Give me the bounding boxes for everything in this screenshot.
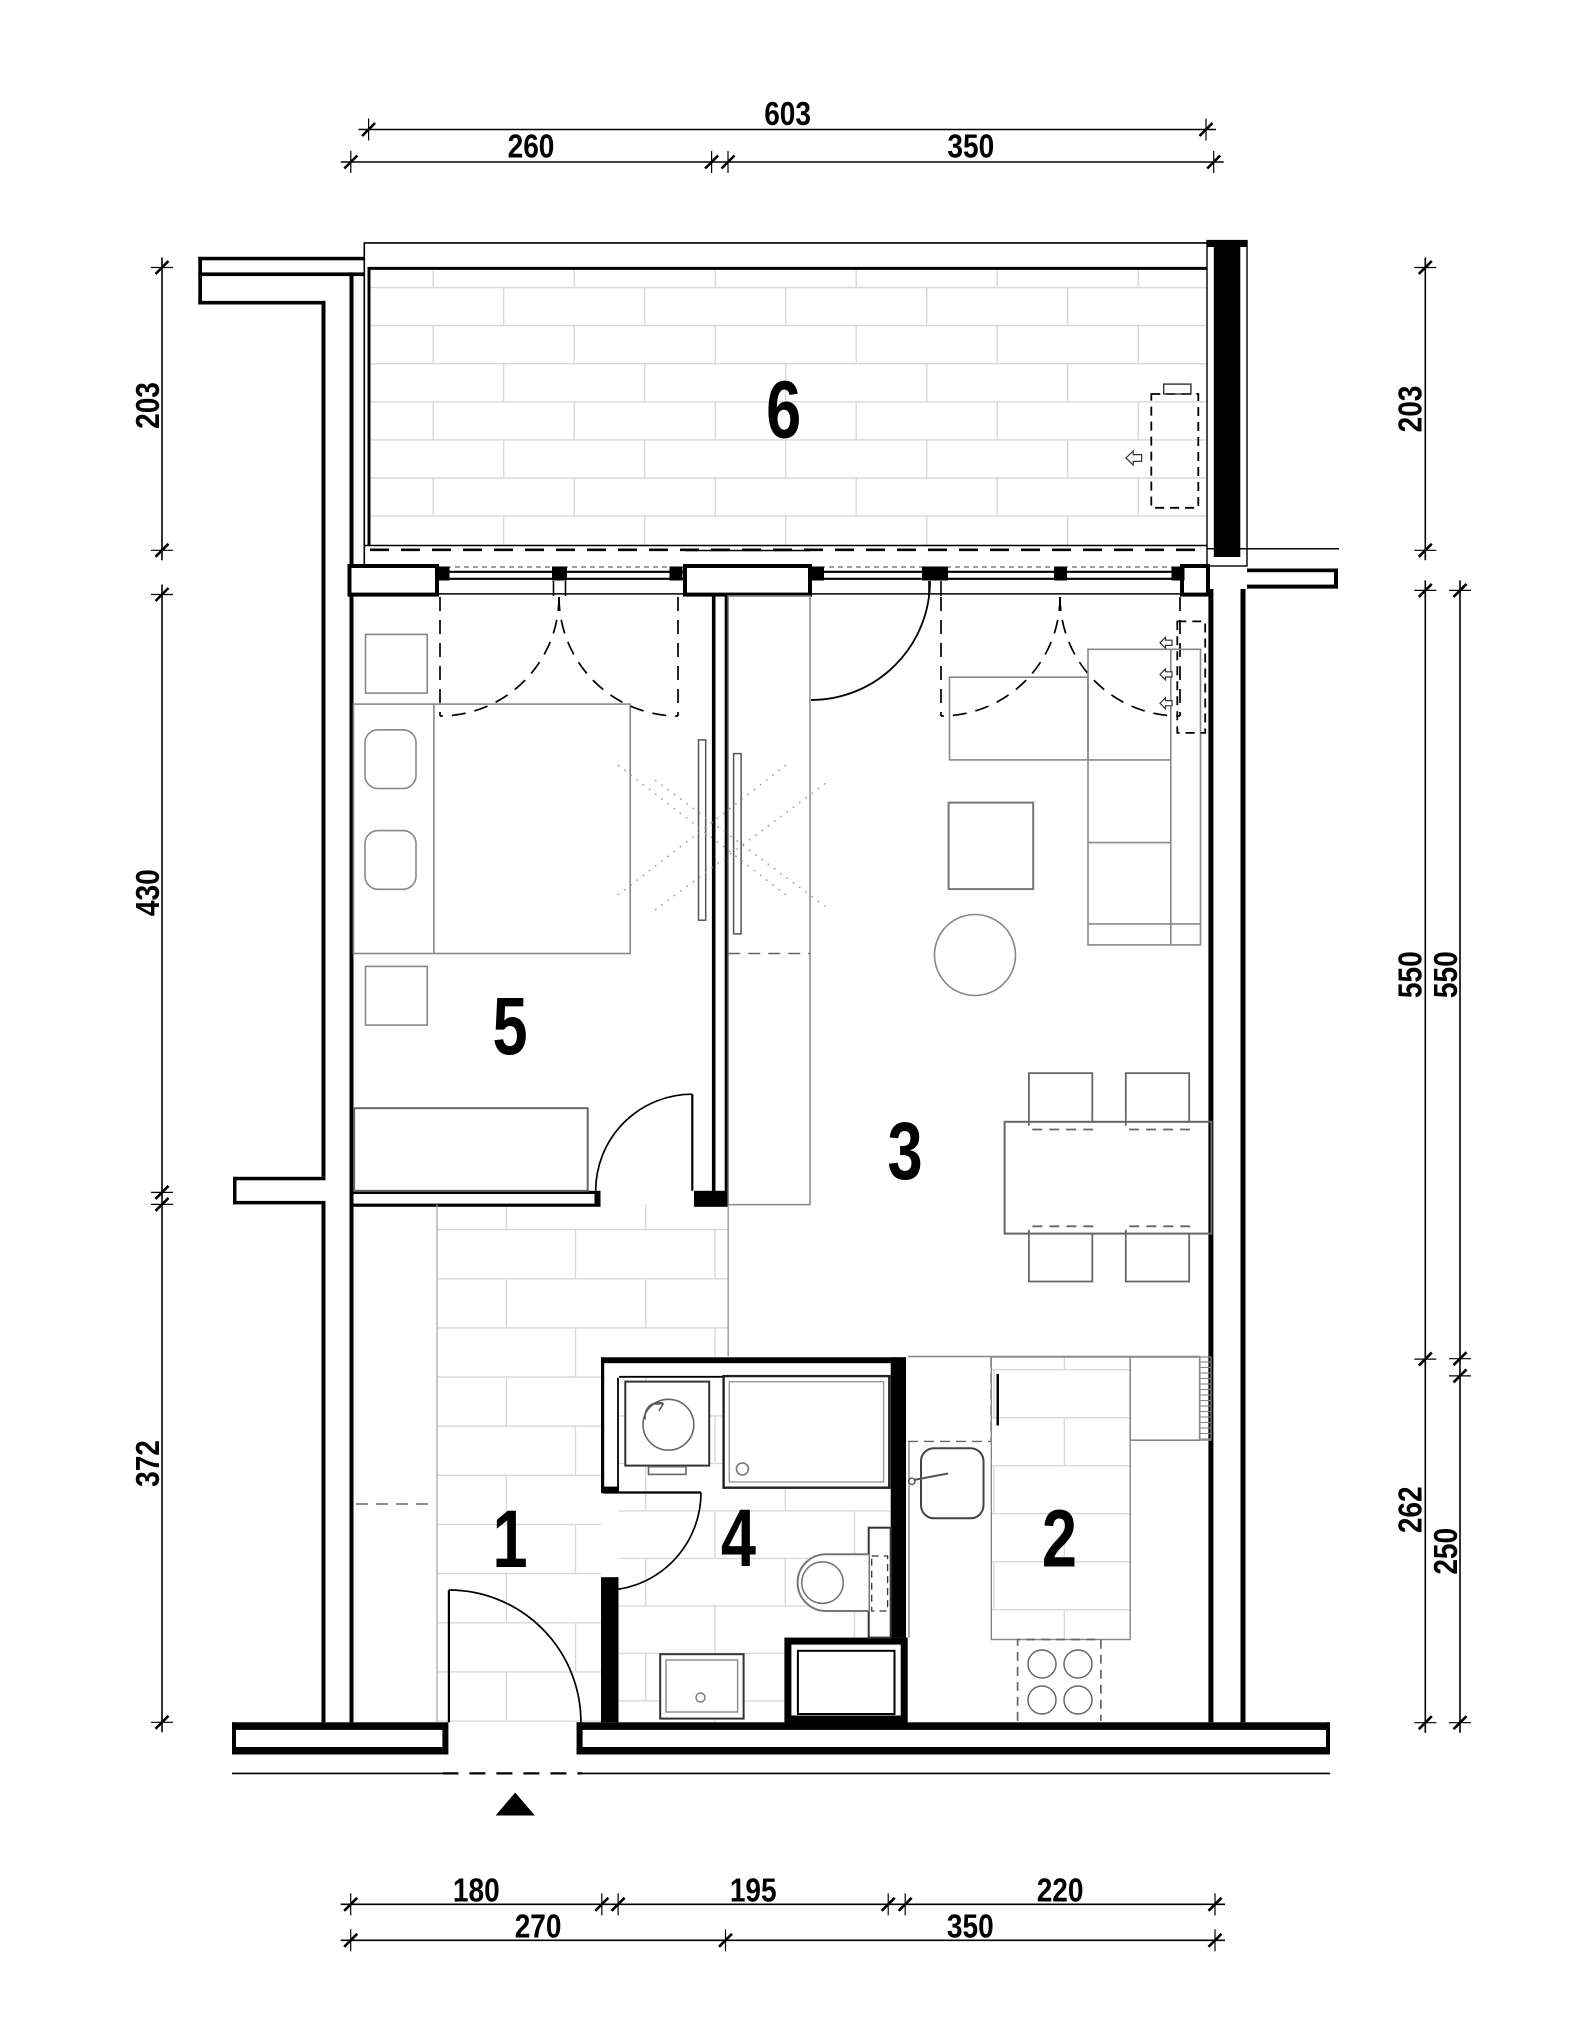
svg-text:350: 350 (947, 1908, 994, 1945)
svg-text:260: 260 (508, 128, 555, 165)
svg-text:5: 5 (492, 980, 527, 1072)
svg-text:550: 550 (1428, 951, 1465, 998)
svg-text:262: 262 (1392, 1486, 1429, 1533)
svg-text:270: 270 (515, 1908, 562, 1945)
svg-text:550: 550 (1392, 951, 1429, 998)
svg-text:6: 6 (766, 363, 801, 455)
svg-text:2: 2 (1042, 1493, 1077, 1585)
svg-text:603: 603 (764, 96, 811, 133)
svg-text:195: 195 (730, 1872, 777, 1909)
svg-text:3: 3 (887, 1105, 922, 1197)
svg-text:4: 4 (721, 1492, 756, 1584)
svg-text:180: 180 (453, 1872, 500, 1909)
svg-text:220: 220 (1037, 1872, 1084, 1909)
svg-text:203: 203 (130, 382, 167, 429)
svg-text:1: 1 (492, 1493, 527, 1585)
svg-text:350: 350 (947, 128, 994, 165)
svg-text:430: 430 (130, 869, 167, 916)
svg-text:203: 203 (1392, 386, 1429, 433)
svg-text:250: 250 (1428, 1528, 1465, 1575)
svg-text:372: 372 (130, 1440, 167, 1487)
